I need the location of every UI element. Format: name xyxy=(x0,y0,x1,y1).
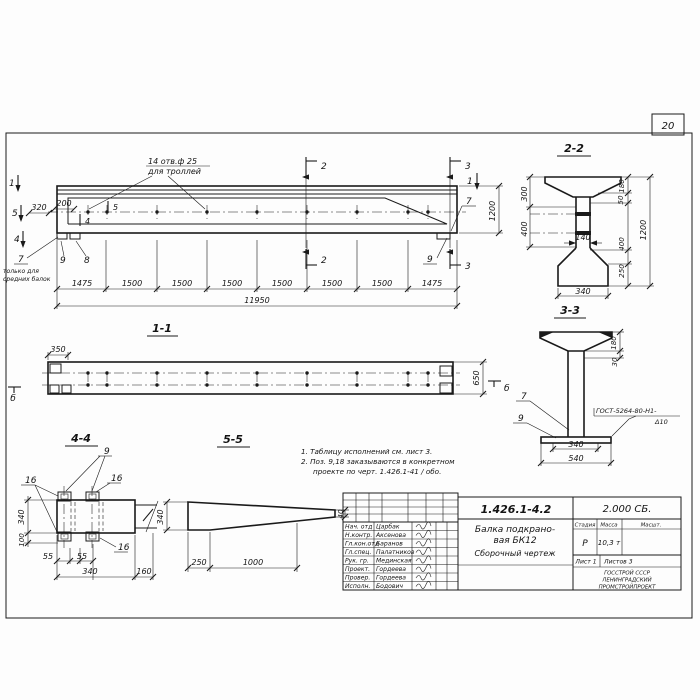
signatures xyxy=(416,522,431,589)
section-title: 4-4 xyxy=(70,432,91,445)
role: Проект. xyxy=(345,566,370,573)
dim-650: 650 xyxy=(472,370,481,385)
section-2-2: 2-2 300 400 140 180 50 400 250 xyxy=(520,142,654,299)
org-line1: ГОССТРОЙ СССР xyxy=(604,570,651,577)
cut-marker-3-bottom: 3 xyxy=(465,262,471,272)
main-elevation-view: 14 отв.ф 25 для троллей 1 5 4 1 2 3 2 3 … xyxy=(3,157,503,309)
seg-dim: 1475 xyxy=(422,279,442,288)
cut-marker-2-bottom: 2 xyxy=(321,256,327,266)
drawing-title-line2: вая БК12 xyxy=(493,536,536,546)
dim-50: 50 xyxy=(616,195,625,205)
doc-number: 1.426.1-4.2 xyxy=(481,503,552,516)
dim-350: 350 xyxy=(50,345,65,354)
seg-dim: 1475 xyxy=(72,279,92,288)
mass-value: 10,3 т xyxy=(598,538,621,547)
note-line-2: 2. Поз. 9,18 заказываются в конкретном xyxy=(301,457,455,466)
role: Исполн. xyxy=(345,583,371,590)
dim-200: 200 xyxy=(56,199,71,208)
scale-header: Масшт. xyxy=(641,523,662,529)
dim-160: 160 xyxy=(136,567,151,576)
cut-mark-5-inner: 5 xyxy=(113,203,118,212)
total-dim: 11950 xyxy=(244,296,269,305)
name: Бодович xyxy=(376,583,403,590)
plan-holes xyxy=(86,371,429,386)
holes-callout-line2: для троллей xyxy=(147,167,201,176)
dim-540: 540 xyxy=(568,454,583,463)
name: Мединская xyxy=(376,558,412,565)
assembly-drawing: 20 14 отв.ф 25 для троллей xyxy=(0,0,700,700)
note-line-1: 1. Таблицу исполнений см. лист 3. xyxy=(301,447,432,456)
role: Гл.кон.отд xyxy=(345,541,379,548)
dim-250: 250 xyxy=(191,558,206,567)
title-block: Нач. отд Царбак Н.контр. Аксенова Гл.кон… xyxy=(343,493,681,591)
pos-8: 8 xyxy=(84,256,90,266)
sheets-label: Листов 3 xyxy=(603,559,633,566)
view-marker-b-left: б xyxy=(10,394,16,404)
pos-16-c: 16 xyxy=(118,543,130,553)
dim-55-a: 55 xyxy=(43,552,53,561)
name: Гордеева xyxy=(376,566,406,573)
org-line3: ПРОМСТРОЙПРОЕКТ xyxy=(599,584,657,591)
weld-note-line1: ГОСТ-5264-80-Н1- xyxy=(596,407,657,415)
role: Нач. отд xyxy=(345,524,372,531)
dim-300: 300 xyxy=(520,186,529,201)
pos-16-b: 16 xyxy=(111,474,123,484)
org-line2: ЛЕНИНГРАДСКИЙ xyxy=(601,577,651,584)
dim-140: 140 xyxy=(575,233,590,242)
weld-note-line2: Δ10 xyxy=(654,418,668,426)
section-title: 2-2 xyxy=(564,142,584,155)
dim-1200-main: 1200 xyxy=(488,201,497,221)
dim-340: 340 xyxy=(575,287,590,296)
stage-header: Стадия xyxy=(575,523,596,529)
dim-340-bottom: 340 xyxy=(82,567,97,576)
dim-340-left: 340 xyxy=(17,509,26,524)
role: Рук. гр. xyxy=(345,558,369,565)
cut-marker-4-left: 4 xyxy=(14,235,20,245)
mass-header: Масса xyxy=(600,523,617,529)
pos-9-right: 9 xyxy=(427,255,433,265)
section-title: 1-1 xyxy=(152,322,172,335)
cut-marker-1-right: 1 xyxy=(467,177,473,187)
cut-marker-1-left: 1 xyxy=(9,179,15,189)
middle-beam-note-1: только для xyxy=(3,268,39,275)
dim-180: 180 xyxy=(609,336,618,350)
section-1-1: 1-1 350 650 xyxy=(8,322,510,404)
dim-30: 30 xyxy=(610,357,619,367)
name: Палатников xyxy=(376,549,415,556)
view-marker-b-right: б xyxy=(504,384,510,394)
pos-9-left: 9 xyxy=(60,256,66,266)
dim-55-b: 55 xyxy=(77,552,87,561)
name: Аксенова xyxy=(375,532,406,539)
pos-9: 9 xyxy=(104,447,110,457)
section-title: 3-3 xyxy=(560,304,580,317)
pos-9: 9 xyxy=(518,414,524,424)
pos-7: 7 xyxy=(521,392,527,402)
cut-marker-2-top: 2 xyxy=(321,162,327,172)
role: Провер. xyxy=(345,575,370,582)
drawing-sheet: 20 14 отв.ф 25 для троллей xyxy=(0,0,700,700)
dim-180: 180 xyxy=(617,179,626,193)
drawing-title-line1: Балка подкрано- xyxy=(475,525,555,535)
dim-1000: 1000 xyxy=(243,558,263,567)
seg-dim: 1500 xyxy=(122,279,142,288)
pos-7-right: 7 xyxy=(466,197,472,207)
dim-340: 340 xyxy=(156,509,165,524)
dim-400-right: 400 xyxy=(617,237,626,251)
dim-250: 250 xyxy=(617,264,626,278)
section-3-3: 3-3 180 30 7 9 ГОСТ-5264-80-Н1- Δ10 3 xyxy=(513,304,680,466)
cut-marker-5-left: 5 xyxy=(12,209,18,219)
dim-100: 100 xyxy=(17,533,26,547)
stage-value: Р xyxy=(582,539,588,549)
sheet-label: Лист 1 xyxy=(574,559,596,566)
section-4-4: 4-4 9 16 16 16 xyxy=(17,432,158,580)
drawing-title-line3: Сборочный чертеж xyxy=(475,549,557,558)
pos-7-left: 7 xyxy=(18,255,24,265)
name: Баранов xyxy=(376,541,403,548)
dim-400-left: 400 xyxy=(520,221,529,236)
name: Царбак xyxy=(376,523,400,531)
name: Гордеева xyxy=(376,575,406,582)
pos-16-a: 16 xyxy=(25,476,37,486)
cut-mark-4-inner: 4 xyxy=(85,217,90,226)
seg-dim: 1500 xyxy=(322,279,342,288)
seg-dim: 1500 xyxy=(372,279,392,288)
dim-320: 320 xyxy=(31,203,46,212)
role: Н.контр. xyxy=(345,532,372,539)
role: Гл.спец. xyxy=(345,549,371,556)
seg-dim: 1500 xyxy=(172,279,192,288)
notes: 1. Таблицу исполнений см. лист 3. 2. Поз… xyxy=(301,447,455,476)
doc-code: 2.000 СБ. xyxy=(603,504,652,515)
cut-marker-3-top: 3 xyxy=(465,162,471,172)
note-line-3: проекте по черт. 1.426.1-41 / обо. xyxy=(313,467,441,476)
holes-callout-line1: 14 отв.ф 25 xyxy=(148,157,197,166)
seg-dim: 1500 xyxy=(222,279,242,288)
dim-340: 340 xyxy=(568,440,583,449)
dim-1200: 1200 xyxy=(639,220,648,240)
revision-grid xyxy=(343,493,458,522)
page-number: 20 xyxy=(662,121,675,132)
middle-beam-note-2: средних балок xyxy=(3,275,51,283)
seg-dim: 1500 xyxy=(272,279,292,288)
section-title: 5-5 xyxy=(223,433,243,446)
